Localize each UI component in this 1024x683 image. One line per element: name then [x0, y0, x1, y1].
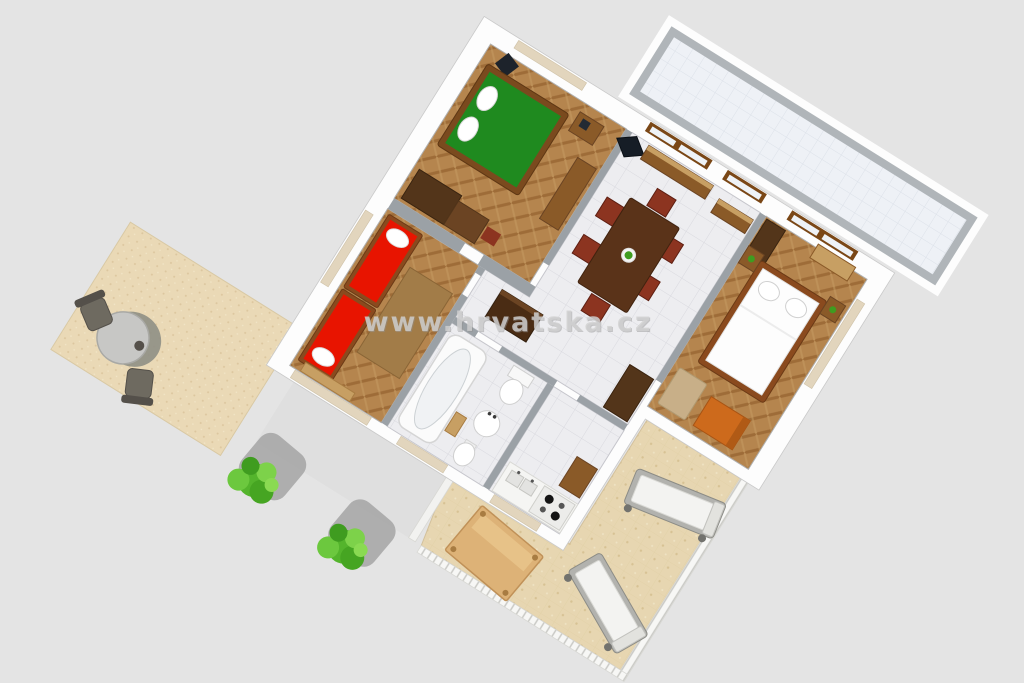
- floor-plan-canvas: www.hrvatska.cz www.hrvatska.cz: [0, 0, 1024, 683]
- watermark-text: www.hrvatska.cz: [364, 307, 653, 338]
- floor-plan-image: www.hrvatska.cz www.hrvatska.cz: [0, 0, 1024, 683]
